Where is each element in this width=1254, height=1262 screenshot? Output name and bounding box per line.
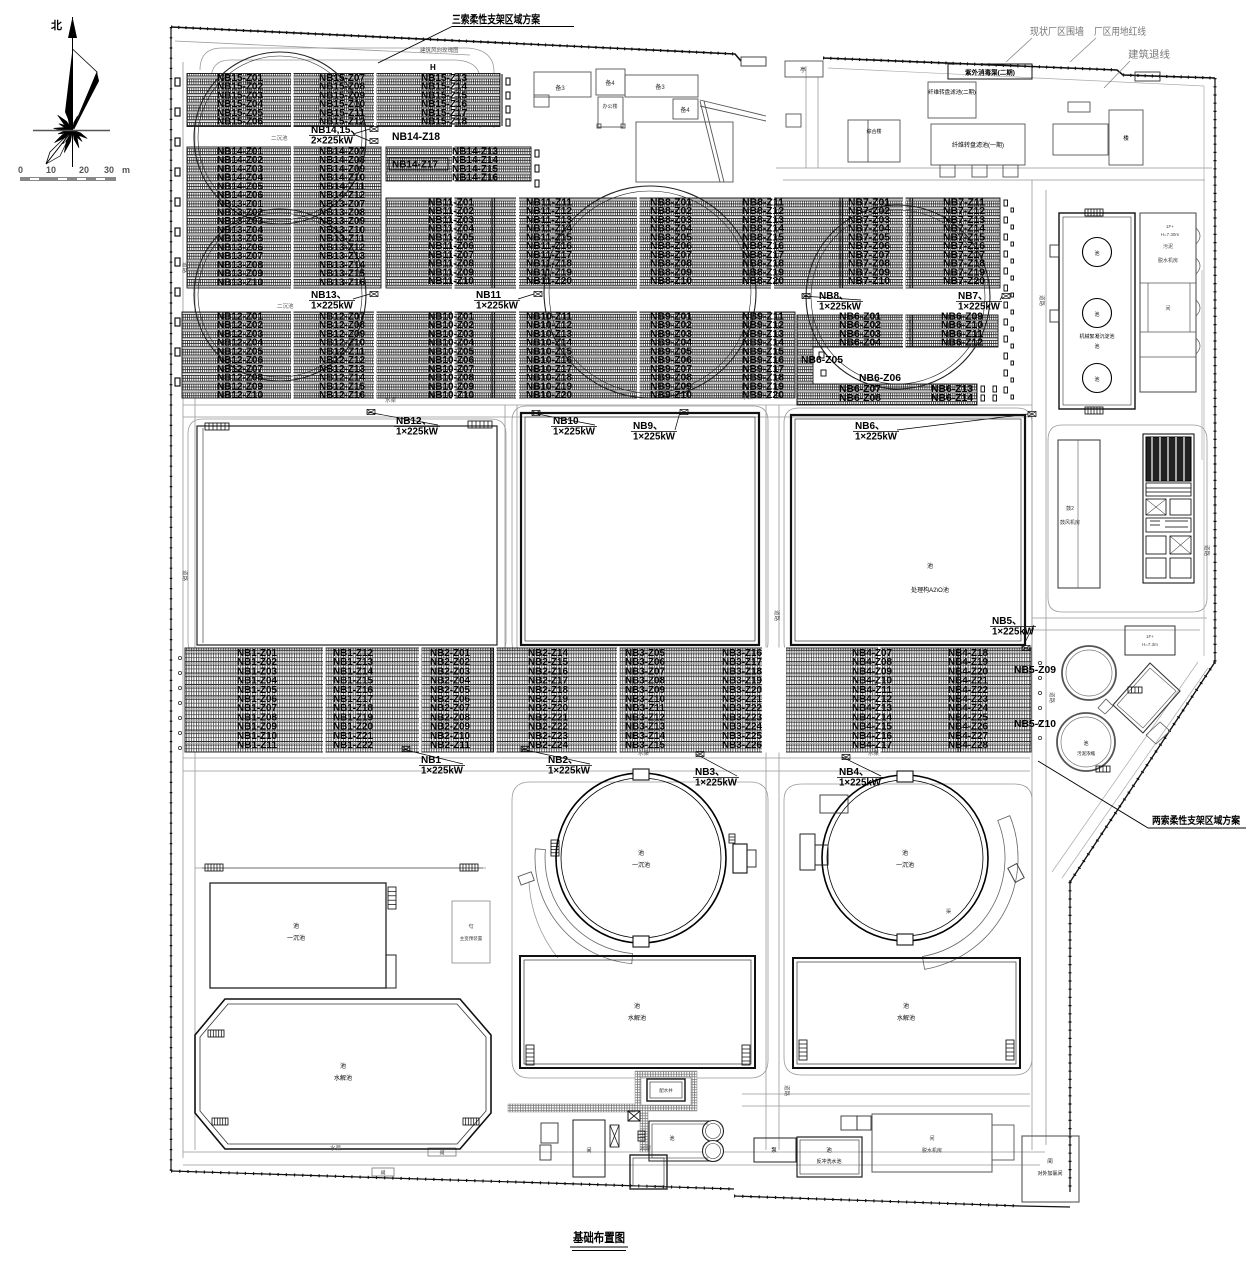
svg-text:间: 间 [586,1147,591,1154]
svg-text:池: 池 [1094,343,1099,350]
svg-text:对外加氯间: 对外加氯间 [1037,1170,1062,1177]
svg-text:水渠: 水渠 [640,1144,652,1152]
svg-text:NB6-Z08: NB6-Z08 [839,392,881,404]
svg-text:间: 间 [1047,1157,1053,1165]
svg-text:2×225kW: 2×225kW [311,136,354,147]
svg-text:水渠: 水渠 [656,387,668,395]
svg-text:二沉池: 二沉池 [277,302,294,310]
svg-text:三索柔性支架区域方案: 三索柔性支架区域方案 [452,12,541,26]
svg-text:水渠: 水渠 [742,393,754,401]
svg-text:机械絮凝沉淀池: 机械絮凝沉淀池 [1079,333,1114,340]
svg-text:道路: 道路 [181,262,189,274]
svg-text:1×225kW: 1×225kW [819,302,862,313]
svg-text:污泥浓缩: 污泥浓缩 [1077,750,1095,757]
svg-text:池: 池 [340,1062,346,1070]
svg-text:20: 20 [79,165,89,175]
svg-text:闸: 闸 [439,1150,444,1157]
svg-text:池: 池 [902,849,908,857]
svg-text:NB2-Z11: NB2-Z11 [430,740,470,751]
svg-text:二沉池: 二沉池 [271,134,288,142]
svg-text:NB5-Z10: NB5-Z10 [1014,718,1056,730]
svg-text:纤维转盘滤池(二期): 纤维转盘滤池(二期) [928,88,976,96]
svg-text:综合楼: 综合楼 [866,128,881,135]
svg-text:1×225kW: 1×225kW [548,766,591,777]
svg-text:H=7.3m: H=7.3m [1142,642,1158,647]
svg-text:道路: 道路 [773,610,781,622]
svg-text:NB12、: NB12、 [396,416,432,427]
svg-text:NB10-Z20: NB10-Z20 [526,389,572,401]
svg-text:1×225kW: 1×225kW [695,778,738,789]
svg-text:一沉池: 一沉池 [287,934,305,942]
svg-text:NB12-Z10: NB12-Z10 [217,389,263,401]
svg-text:建筑退线: 建筑退线 [1128,48,1170,61]
svg-text:NB3-Z26: NB3-Z26 [722,740,762,751]
svg-text:1×225kW: 1×225kW [553,427,596,438]
svg-text:闸: 闸 [380,1170,385,1177]
svg-text:NB7-Z20: NB7-Z20 [943,275,985,287]
svg-text:厂区用地红线: 厂区用地红线 [1094,25,1146,38]
svg-text:1×225kW: 1×225kW [633,432,676,443]
svg-text:处理构A2\O池: 处理构A2\O池 [911,586,949,594]
svg-text:NB2-Z24: NB2-Z24 [528,740,568,751]
svg-text:配水井: 配水井 [659,1087,673,1094]
svg-text:鼓风机房: 鼓风机房 [1060,519,1080,526]
svg-text:NB7-Z10: NB7-Z10 [848,275,890,287]
svg-text:备4: 备4 [680,106,690,114]
svg-text:池: 池 [927,562,933,570]
svg-text:NB1-Z22: NB1-Z22 [333,740,373,751]
svg-text:NB13-Z10: NB13-Z10 [217,276,263,288]
svg-text:道路: 道路 [783,1085,791,1097]
svg-text:池: 池 [638,849,644,857]
svg-text:北: 北 [51,18,62,32]
svg-text:水解池: 水解池 [628,1014,646,1022]
svg-text:脱水机房: 脱水机房 [1158,257,1178,264]
svg-text:备3: 备3 [555,84,565,92]
svg-text:0: 0 [18,165,23,175]
svg-text:NB5-Z09: NB5-Z09 [1014,664,1056,676]
svg-text:道路: 道路 [1038,295,1046,307]
svg-text:池: 池 [1083,740,1088,747]
svg-text:NB1-Z11: NB1-Z11 [237,740,277,751]
svg-text:水解池: 水解池 [334,1074,352,1082]
svg-text:匂: 匂 [468,923,473,930]
svg-text:水渠: 水渠 [868,749,880,757]
svg-text:1×225kW: 1×225kW [839,778,882,789]
svg-text:NB6-Z12: NB6-Z12 [941,337,983,349]
svg-text:池: 池 [669,1135,674,1142]
svg-text:NB5、: NB5、 [992,616,1022,627]
svg-text:渠: 渠 [946,908,951,915]
svg-text:1×225kW: 1×225kW [855,432,898,443]
svg-text:NB8-Z20: NB8-Z20 [742,275,784,287]
svg-text:NB14-Z16: NB14-Z16 [452,172,498,184]
svg-text:池: 池 [903,1002,909,1010]
svg-text:1×225kW: 1×225kW [421,766,464,777]
svg-text:NB3-Z15: NB3-Z15 [625,740,665,751]
svg-text:30: 30 [104,165,114,175]
svg-text:现状厂区围墙: 现状厂区围墙 [1030,25,1084,38]
svg-text:NB6、: NB6、 [855,421,885,432]
svg-text:H=7.30m: H=7.30m [1161,232,1180,237]
svg-text:NB13、: NB13、 [311,290,347,301]
svg-text:池: 池 [826,1146,832,1154]
svg-text:NB14-Z17: NB14-Z17 [392,159,438,171]
svg-text:NB8、: NB8、 [819,291,849,302]
svg-text:道路: 道路 [181,570,189,582]
svg-text:NB11: NB11 [476,290,501,301]
svg-text:NB10-Z10: NB10-Z10 [428,389,474,401]
svg-text:NB15-Z18: NB15-Z18 [421,116,467,128]
svg-text:NB4-Z28: NB4-Z28 [948,740,988,751]
svg-text:基础布置图: 基础布置图 [572,1230,625,1245]
svg-text:1×225kW: 1×225kW [476,301,519,312]
svg-text:池: 池 [1094,376,1099,383]
svg-text:NB4-Z17: NB4-Z17 [852,740,892,751]
svg-text:道路: 道路 [1203,545,1211,557]
svg-text:NB13-Z16: NB13-Z16 [319,276,365,288]
svg-text:池: 池 [1094,250,1099,257]
svg-text:池: 池 [634,1002,640,1010]
svg-text:NB1: NB1 [421,755,441,766]
svg-text:泵: 泵 [771,1147,777,1154]
svg-text:NB6-Z14: NB6-Z14 [931,392,973,404]
svg-text:备3: 备3 [655,83,665,91]
svg-text:道路: 道路 [1048,692,1056,704]
svg-text:水渠: 水渠 [385,396,397,404]
svg-text:NB12-Z16: NB12-Z16 [319,389,365,401]
svg-text:鼓2: 鼓2 [1066,505,1074,512]
svg-text:亭: 亭 [800,66,806,74]
svg-text:NB7、: NB7、 [958,291,988,302]
svg-text:纤维转盘滤池(一期): 纤维转盘滤池(一期) [952,141,1004,149]
svg-text:NB11-Z10: NB11-Z10 [428,275,474,287]
svg-text:NB14-Z18: NB14-Z18 [392,131,440,143]
svg-text:污泥: 污泥 [1163,243,1173,250]
svg-text:脱水机房: 脱水机房 [922,1147,942,1154]
svg-text:水解池: 水解池 [897,1014,915,1022]
svg-text:NB11-Z20: NB11-Z20 [526,275,572,287]
svg-text:H: H [430,63,436,72]
svg-text:m: m [122,165,130,175]
svg-text:建筑风向玫瑰图: 建筑风向玫瑰图 [420,46,459,54]
svg-text:一沉池: 一沉池 [632,861,650,869]
svg-text:办公楼: 办公楼 [602,103,617,110]
svg-text:1F+: 1F+ [1146,634,1154,639]
svg-text:池: 池 [293,922,299,930]
svg-text:间: 间 [1165,305,1170,312]
svg-text:备4: 备4 [605,79,615,87]
svg-text:主变预装置: 主变预装置 [460,935,483,942]
svg-text:两索柔性支架区域方案: 两索柔性支架区域方案 [1152,814,1241,827]
svg-text:一沉池: 一沉池 [896,861,914,869]
svg-text:10: 10 [46,165,56,175]
svg-text:NB6-Z04: NB6-Z04 [839,337,881,349]
svg-text:水渠: 水渠 [330,1144,342,1152]
svg-text:NB3、: NB3、 [695,767,725,778]
svg-text:1F+: 1F+ [1166,224,1174,229]
svg-text:水渠: 水渠 [638,749,650,757]
svg-text:楼: 楼 [1123,134,1129,142]
svg-text:反冲洗水池: 反冲洗水池 [816,1158,841,1165]
svg-text:NB4、: NB4、 [839,767,869,778]
svg-text:NB8-Z10: NB8-Z10 [650,275,692,287]
svg-text:1×225kW: 1×225kW [311,301,354,312]
svg-text:间: 间 [929,1135,934,1142]
svg-text:池: 池 [1094,311,1099,318]
svg-text:紫外消毒渠(二期): 紫外消毒渠(二期) [965,68,1015,77]
svg-text:1×225kW: 1×225kW [396,427,439,438]
svg-text:NB15-Z06: NB15-Z06 [217,116,263,128]
svg-text:NB6-Z05: NB6-Z05 [801,354,843,366]
svg-text:1×225kW: 1×225kW [958,302,1001,313]
svg-text:NB9、: NB9、 [633,421,663,432]
